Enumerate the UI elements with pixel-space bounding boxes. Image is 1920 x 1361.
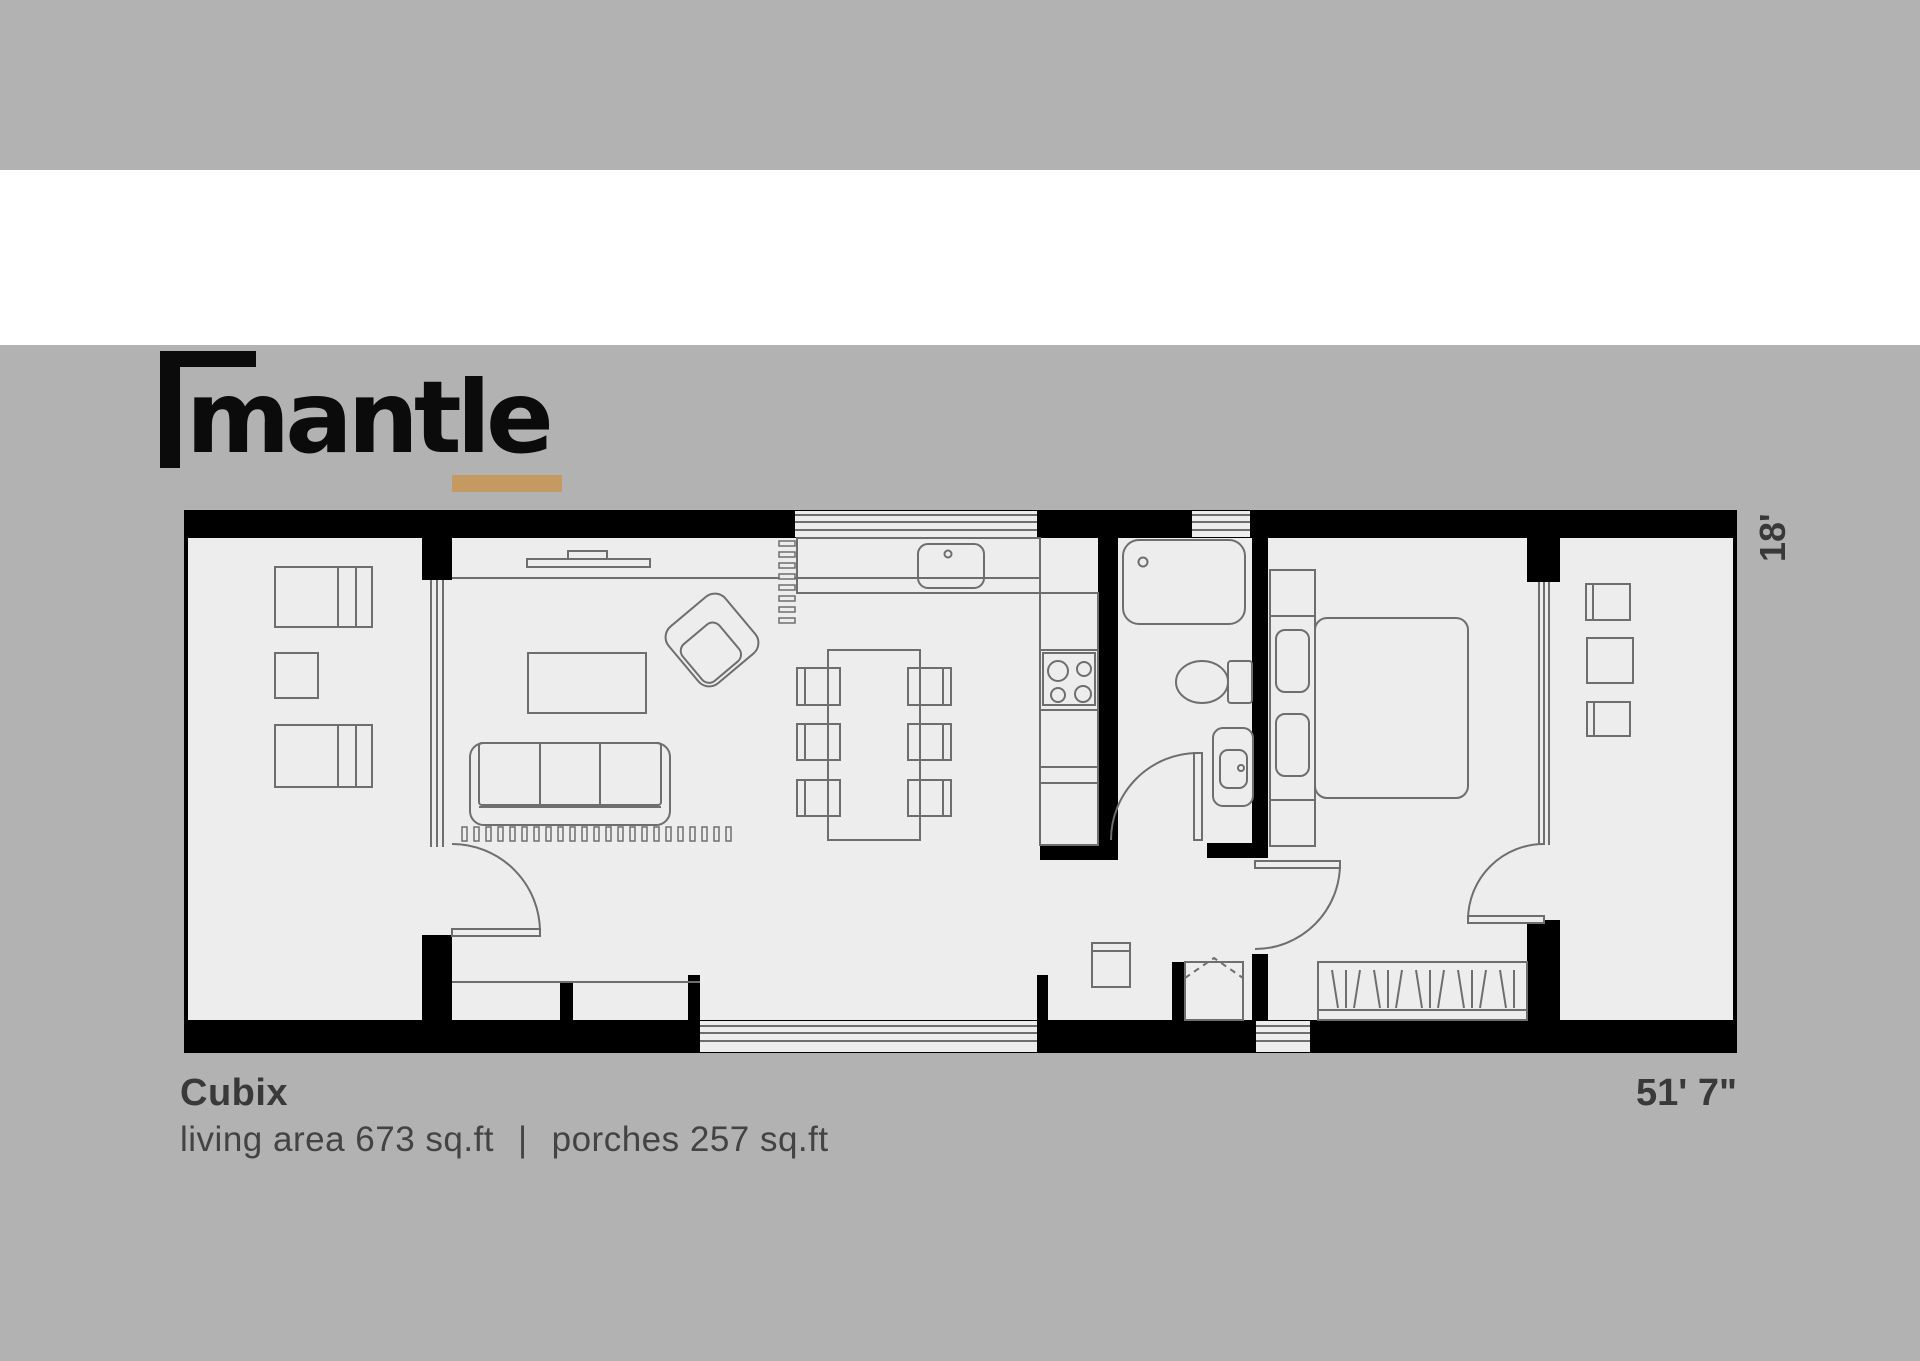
porches-label: porches 257 sq.ft (552, 1120, 829, 1159)
wall-bath-bedroom-top (1252, 538, 1268, 858)
caption-separator: | (518, 1120, 528, 1160)
wall-stub-closet (1172, 962, 1185, 1053)
window-bottom-main (700, 1021, 1037, 1052)
dimension-height-label: 18' (1752, 513, 1794, 562)
dimension-width-label: 51' 7" (1636, 1072, 1737, 1115)
wall-stub-hall (1037, 975, 1048, 1053)
wall-bedroom-right-bottom (1527, 920, 1560, 1053)
wall-kitchen-end (1040, 845, 1118, 860)
wall-porch-divider-bottom (422, 935, 452, 1020)
wall-kitchen-bath (1098, 538, 1118, 845)
window-bath-top (1192, 511, 1250, 537)
wall-bath-south (1207, 843, 1252, 858)
wall-porch-divider-top (422, 538, 452, 580)
wall-right-edge (1733, 510, 1737, 1053)
plan-caption: living area 673 sq.ft|porches 257 sq.ft (180, 1120, 829, 1160)
window-kitchen-top (795, 511, 1037, 537)
rug-fringe-ticks (462, 827, 731, 841)
wall-left-edge (184, 510, 188, 1053)
window-bottom-small (1256, 1021, 1310, 1052)
wall-stub-entry-porch (560, 982, 573, 1020)
living-area-label: living area 673 sq.ft (180, 1120, 494, 1159)
plan-title: Cubix (180, 1072, 288, 1115)
floorplan-sheet: { "logo": { "wordmark": "mantle" }, "flo… (0, 0, 1920, 1361)
wall-bedroom-right-top (1527, 538, 1560, 582)
